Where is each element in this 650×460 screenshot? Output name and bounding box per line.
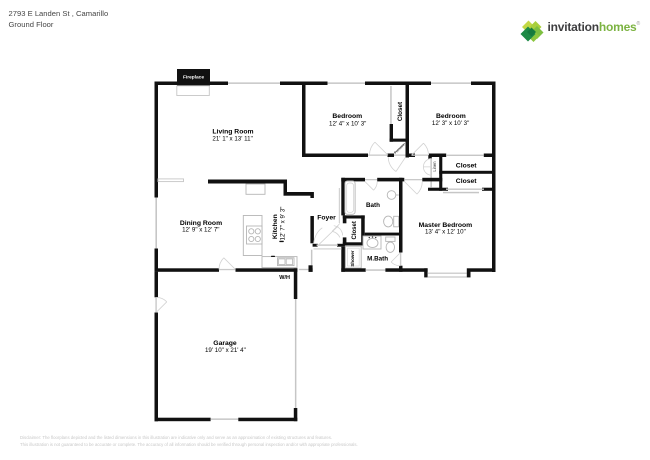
svg-text:21' 1" x 13' 11": 21' 1" x 13' 11" — [212, 136, 252, 143]
svg-text:Closet: Closet — [456, 162, 478, 169]
svg-text:Foyer: Foyer — [317, 214, 336, 221]
svg-text:Closet: Closet — [456, 178, 478, 185]
svg-text:12' 3" x 10' 3": 12' 3" x 10' 3" — [432, 120, 469, 127]
svg-text:Closet: Closet — [352, 221, 358, 239]
svg-text:12' 9" x 12' 7": 12' 9" x 12' 7" — [182, 227, 219, 234]
svg-text:13' 4" x 12' 10": 13' 4" x 12' 10" — [425, 229, 466, 236]
svg-text:19' 10" x 21' 4": 19' 10" x 21' 4" — [205, 347, 246, 354]
svg-text:Kitchen: Kitchen — [272, 214, 279, 239]
svg-text:Bedroom: Bedroom — [332, 113, 362, 120]
svg-text:M.Bath: M.Bath — [367, 256, 388, 263]
svg-text:W/H: W/H — [279, 275, 290, 281]
svg-text:Living Room: Living Room — [212, 129, 253, 136]
svg-text:Closet: Closet — [397, 101, 404, 121]
svg-text:Shower: Shower — [350, 250, 355, 267]
svg-text:12' 7" x 9' 3": 12' 7" x 9' 3" — [279, 207, 286, 241]
svg-text:Linen: Linen — [432, 161, 437, 172]
svg-text:Bath: Bath — [366, 202, 380, 209]
svg-text:12' 4" x 10' 3": 12' 4" x 10' 3" — [329, 120, 366, 127]
svg-text:Furnace: Furnace — [393, 143, 405, 155]
svg-text:Bedroom: Bedroom — [436, 113, 466, 120]
svg-text:Fireplace: Fireplace — [183, 75, 204, 81]
